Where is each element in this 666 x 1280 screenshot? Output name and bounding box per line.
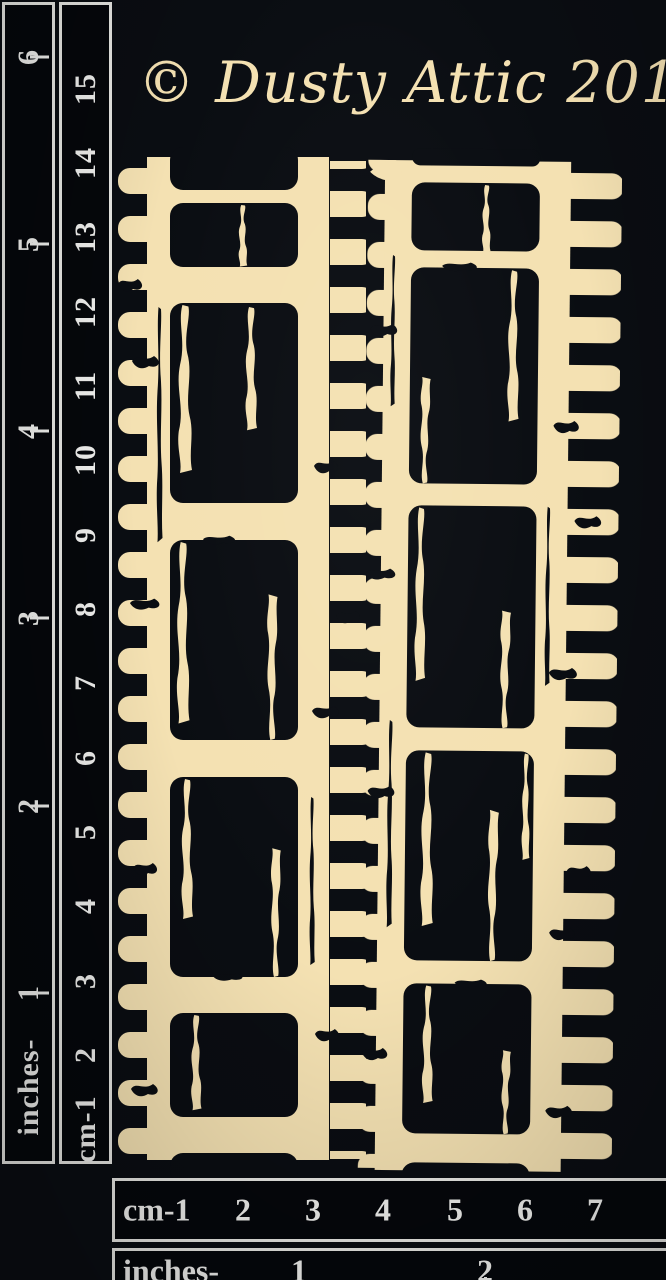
ruler-mark-label: 3 [305, 1192, 321, 1229]
ruler-mark-label: 6 [517, 1192, 533, 1229]
ruler-mark-label: 1 [291, 1253, 307, 1280]
left-ruler-inches: inches- 1 2 3 4 5 6 [2, 2, 55, 1164]
product-photo: © Dusty Attic 2017 [0, 0, 666, 1280]
ruler-mark-label: 4 [375, 1192, 391, 1229]
inch-tick [30, 430, 49, 433]
ruler-mark-label: 6 [69, 750, 103, 766]
ruler-mark-label: 9 [69, 527, 103, 543]
ruler-mark-label: 4 [69, 898, 103, 914]
ruler-mark-label: 2 [235, 1192, 251, 1229]
ruler-mark-label: 11 [69, 371, 103, 401]
ruler-mark-label: 5 [69, 824, 103, 840]
watermark-text: © Dusty Attic 2017 [138, 50, 638, 140]
inch-tick [30, 56, 49, 59]
ruler-unit-label: cm-1 [69, 1095, 103, 1162]
ruler-mark-label: 8 [69, 601, 103, 617]
ruler-mark-label: 2 [69, 1047, 103, 1063]
film-strip-left-piece [118, 157, 366, 1163]
inch-tick [30, 805, 49, 808]
ruler-unit-label: inches- [123, 1253, 219, 1280]
ruler-unit-label: cm-1 [123, 1192, 191, 1229]
ruler-unit-label: inches- [12, 1039, 46, 1136]
ruler-mark-label: 10 [69, 444, 103, 476]
ruler-mark-label: 15 [69, 73, 103, 105]
ruler-mark-label: 13 [69, 221, 103, 253]
ruler-mark-label: 7 [587, 1192, 603, 1229]
ruler-mark-label: 12 [69, 296, 103, 328]
ruler-mark-label: 7 [69, 675, 103, 691]
left-ruler-cm: cm-1 2 3 4 5 6 7 8 9 10 11 12 13 14 15 [59, 2, 112, 1164]
inch-tick [30, 992, 49, 995]
ruler-mark-label: 3 [69, 973, 103, 989]
inch-tick [30, 617, 49, 620]
ruler-mark-label: 2 [477, 1253, 493, 1280]
ruler-mark-label: 5 [447, 1192, 463, 1229]
bottom-ruler-cm: cm-1 2 3 4 5 6 7 [112, 1178, 666, 1242]
inch-tick [30, 243, 49, 246]
film-strip-right-piece [358, 160, 623, 1178]
bottom-ruler-inches: inches- 1 2 [112, 1248, 666, 1280]
ruler-mark-label: 14 [69, 147, 103, 179]
